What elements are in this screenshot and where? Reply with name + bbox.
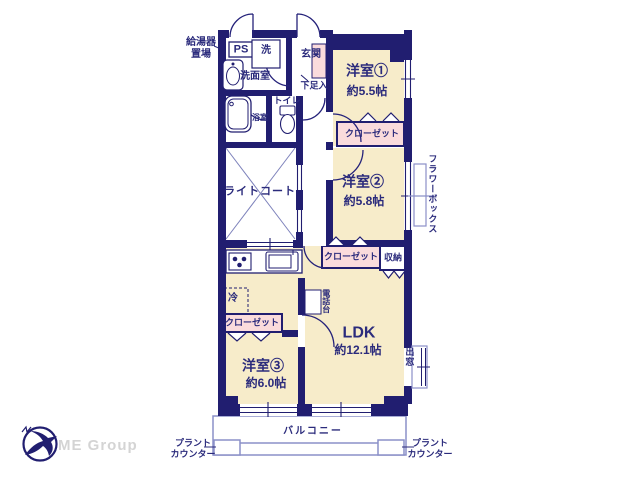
label-phone-stand: 電話台 <box>321 289 331 313</box>
label-flower-box: フラワーボックス <box>427 154 438 234</box>
label-ldk-size: 約12.1帖 <box>334 343 381 357</box>
label-bath: 浴室 <box>252 113 268 123</box>
label-room1-size: 約5.5帖 <box>347 84 388 98</box>
logo-text: ME Group <box>58 437 138 454</box>
label-light-court: ライトコート <box>224 185 296 198</box>
label-room1-name: 洋室① <box>346 63 388 80</box>
label-closet1: クローゼット <box>345 129 399 140</box>
toilet-icon <box>280 106 295 134</box>
label-storage: 収納 <box>384 253 402 264</box>
label-plant-counter-right: プラント カウンター <box>407 438 452 460</box>
label-gas-heater: 給湯器 置場 <box>186 37 216 61</box>
logo-bird-icon <box>22 427 57 461</box>
bay-window <box>412 346 430 388</box>
label-room3-size: 約6.0帖 <box>246 376 287 390</box>
label-ps: PS <box>234 43 249 56</box>
sink-icon <box>266 250 298 271</box>
bathtub-icon <box>225 96 251 132</box>
label-shoe-box: 下足入 <box>300 81 327 92</box>
label-closet3: クローゼット <box>225 318 279 329</box>
label-fridge: 冷 <box>228 293 238 305</box>
label-room3-name: 洋室③ <box>242 358 284 375</box>
label-bay-window: 出窓 <box>404 347 415 367</box>
phone-stand-box <box>305 290 321 314</box>
label-toilet: トイレ <box>273 96 300 107</box>
label-entrance: 玄関 <box>301 49 321 61</box>
label-washroom: 洗面室 <box>240 71 270 83</box>
label-room2-name: 洋室② <box>342 174 384 191</box>
label-ldk-name: LDK <box>343 323 376 342</box>
label-closet2: クローゼット <box>324 252 378 263</box>
label-laundry: 洗 <box>261 45 271 57</box>
label-plant-counter-left: プラント カウンター <box>170 438 215 460</box>
kitchen-counter <box>226 250 302 273</box>
label-room2-size: 約5.8帖 <box>344 194 385 208</box>
floorplan-canvas: 給湯器 置場 PS 洗 玄関 洗面室 下足入 トイレ 浴室 洋室① 約5.5帖 … <box>0 0 640 480</box>
stove-icon <box>229 253 251 270</box>
label-balcony: バルコニー <box>283 426 343 438</box>
floorplan-drawing <box>0 0 640 480</box>
